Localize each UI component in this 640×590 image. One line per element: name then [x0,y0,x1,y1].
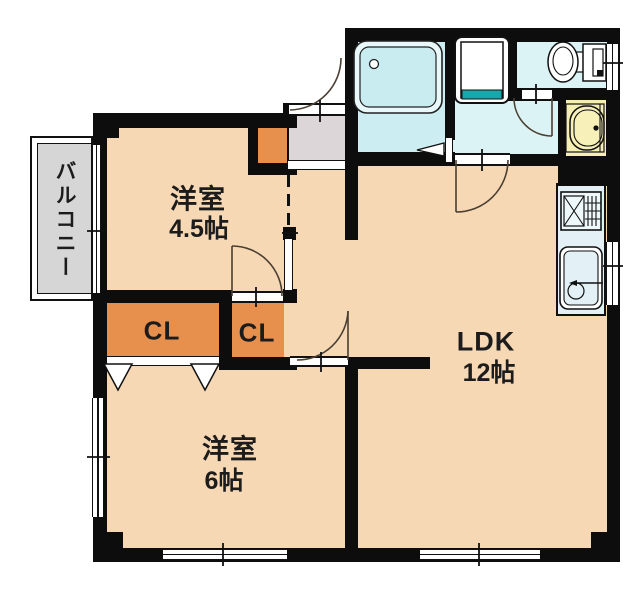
wall-segment [345,28,358,240]
kitchen-counter [556,183,606,316]
bathroom-doorway [445,138,453,162]
closet-right-label: CL [239,318,276,349]
toilet-doorway [522,88,552,101]
toilet-side-window [606,44,619,90]
bathroom-floor [348,30,452,163]
kitchen-side-window [606,242,619,305]
wall-segment [283,289,297,303]
wall-segment [591,532,607,548]
wall-segment [345,357,430,369]
closet-left-door-line [107,356,219,366]
wall-segment [508,30,517,92]
room6-size: 6帖 [205,461,244,497]
closet-left-label: CL [144,316,181,347]
washbasin-counter [566,100,606,156]
floor-plan: バルコニー 洋室 4.5帖 CL CL 洋室 6帖 LDK 12帖 [0,0,640,590]
wall-segment [508,88,522,101]
room45-size: 4.5帖 [169,209,229,245]
closet-right-doorway [232,291,283,303]
balcony-window [92,145,101,293]
wall-segment [345,357,358,548]
ldk-size: 12帖 [463,353,516,389]
balcony-label: バルコニー [49,160,79,280]
wall-segment [345,28,620,42]
room6-doorway [290,356,348,367]
wall-segment [219,290,232,366]
wall-segment [510,154,560,166]
washroom-doorway [455,153,510,166]
room6-left-window [92,398,104,517]
wall-segment [93,290,232,303]
wall-segment [219,357,297,370]
wall-segment [107,532,123,548]
wall-segment [345,152,455,166]
room6-bottom-window [163,549,287,560]
entrance-doorway [289,103,345,116]
wall-segment [93,113,296,128]
ldk-bottom-window [420,549,540,560]
genkan-step [288,160,345,170]
wall-segment [445,30,455,140]
room45-opening [284,239,293,290]
